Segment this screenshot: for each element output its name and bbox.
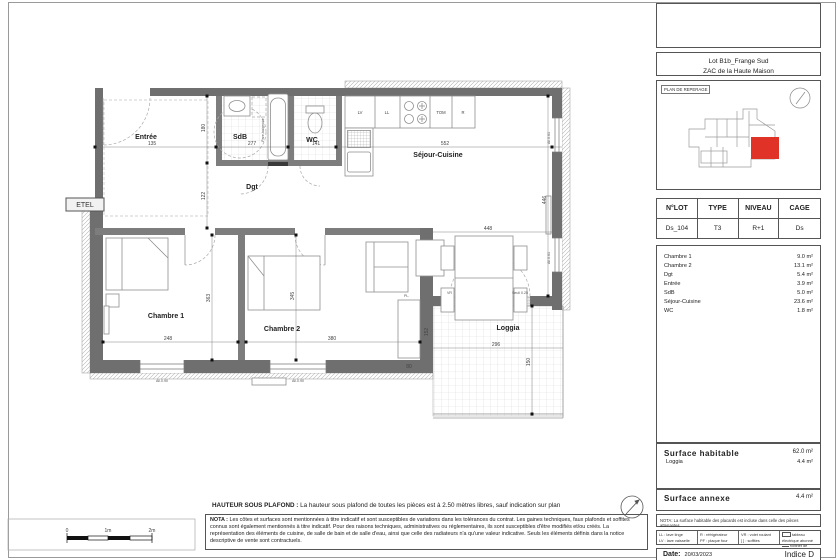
dining-table	[441, 236, 527, 320]
legend-col-3: VR : volet roulant [ ] : soffites	[739, 531, 780, 544]
label-r: R	[461, 110, 464, 115]
scale-1m: 1m	[105, 528, 112, 534]
label-lv: LV	[358, 110, 363, 115]
bed-chambre2	[248, 256, 320, 310]
label-pl: PL.	[404, 294, 409, 298]
area-value: 1.8 m²	[797, 307, 813, 316]
area-label: Séjour-Cuisine	[664, 298, 701, 307]
area-label: SdB	[664, 289, 675, 298]
label-tom: TOM	[436, 110, 446, 115]
area-value: 5.4 m²	[797, 271, 813, 280]
area-row: Chambre 19.0 m²	[657, 253, 820, 262]
dim-sejour-b: 448	[484, 226, 493, 232]
window-chambre1	[140, 360, 184, 373]
key-plan	[657, 81, 820, 189]
dim-sejour-h: 446	[542, 196, 548, 205]
dim-pl-h: 152	[424, 328, 430, 337]
window-chambre2	[270, 360, 326, 373]
label-sdb: SdB	[233, 134, 247, 141]
ceiling-height-text: La hauteur sous plafond de toutes les pi…	[298, 502, 560, 509]
dim-ch1-h: 363	[206, 294, 212, 303]
wardrobe-pl	[398, 300, 420, 358]
lot-value-niveau: R+1	[739, 219, 780, 238]
ch1-door-arc	[185, 235, 215, 265]
towel-radiator	[268, 162, 288, 166]
key-plan-box: PLAN DE REPERAGE	[656, 80, 821, 190]
label-pare-baignoire: Pare-baignoire	[261, 118, 265, 142]
scale-bar: 0 1m 2m	[8, 519, 195, 550]
lot-header-niveau: NIVEAU	[739, 199, 780, 219]
label-all-090-a: All.0.90	[156, 379, 168, 383]
dim-pl-w: 80	[406, 364, 412, 370]
dim-ch1-w: 248	[164, 336, 173, 342]
area-row: Séjour-Cuisine23.6 m²	[657, 298, 820, 307]
area-row: Entrée3.9 m²	[657, 280, 820, 289]
label-chambre2: Chambre 2	[264, 326, 300, 333]
ceiling-height-note: HAUTEUR SOUS PLAFOND : La hauteur sous p…	[212, 502, 642, 509]
area-value: 3.9 m²	[797, 280, 813, 289]
dim-loggia-w: 296	[492, 342, 501, 348]
drawing-sheet: Entrée SdB WC Dgt Séjour-Cuisine Chambre…	[0, 0, 840, 560]
project-line2: ZAC de la Haute Maison	[657, 67, 820, 77]
date-value: 20/03/2023	[685, 552, 785, 558]
lot-header-cage: CAGE	[779, 199, 820, 219]
nota-label: NOTA :	[210, 517, 228, 523]
area-label: WC	[664, 307, 673, 316]
project-line1: Lot B1b_Frange Sud	[657, 57, 820, 67]
legend-box: LL : lave linge LV : lave vaisselle R : …	[656, 530, 821, 545]
lot-header-type: TYPE	[698, 199, 739, 219]
window-sejour-2	[552, 238, 562, 272]
legend-lv: LV : lave vaisselle	[659, 538, 695, 544]
label-chambre1: Chambre 1	[148, 313, 184, 320]
label-etel: ETEL	[76, 202, 94, 209]
nota-text: Les côtes et surfaces sont mentionnées à…	[210, 517, 630, 544]
area-label: Chambre 2	[664, 262, 692, 271]
sofa	[366, 242, 408, 292]
indice-label: Indice D	[785, 550, 814, 559]
label-dgt: Dgt	[246, 184, 258, 191]
nightstand-ch1	[106, 294, 119, 307]
surface-loggia-label: Loggia	[666, 459, 683, 465]
dim-ch2-w: 380	[328, 336, 337, 342]
surface-annexe-value: 4.4 m²	[796, 494, 813, 503]
label-all-090-b: All.0.90	[292, 379, 304, 383]
label-sejour: Séjour-Cuisine	[413, 152, 463, 159]
area-value: 23.6 m²	[794, 298, 813, 307]
bathtub	[268, 94, 288, 160]
area-row: SdB5.0 m²	[657, 289, 820, 298]
radiator-ch1	[104, 306, 109, 334]
dim-loggia-h: 150	[526, 358, 532, 367]
area-label: Entrée	[664, 280, 680, 289]
surface-habitable-value: 62.0 m²	[793, 449, 813, 458]
surface-loggia-value: 4.4 m²	[797, 459, 813, 465]
wc-door-arc	[300, 166, 320, 186]
legend-col-2: R : réfrigérateur PF : plaque four	[698, 531, 739, 544]
lot-value-cage: Ds	[779, 219, 820, 238]
dim-dgt: 122	[201, 192, 207, 201]
surface-annexe-box: Surface annexe 4.4 m²	[656, 489, 821, 511]
kitchen-sink	[345, 128, 373, 176]
label-entree: Entrée	[135, 134, 157, 141]
dim-sdb-w: 277	[248, 141, 257, 147]
area-label: Dgt	[664, 271, 673, 280]
date-box: Date: 20/03/2023 Indice D	[656, 548, 821, 560]
label-all-061-b: All.0.61	[547, 252, 551, 264]
nota-box: NOTA : Les côtes et surfaces sont mentio…	[205, 514, 648, 550]
entree-soffit-dashed	[104, 100, 208, 216]
window-entrance-door-gap	[103, 88, 150, 96]
legend-pf: PF : plaque four	[700, 538, 736, 544]
label-ll: LL	[385, 110, 390, 115]
architect-box	[656, 3, 821, 48]
tap-icon	[782, 546, 789, 547]
surface-habitable-box: Surface habitable 62.0 m² Loggia 4.4 m²	[656, 443, 821, 489]
area-row: Chambre 213.1 m²	[657, 262, 820, 271]
key-plan-highlight	[751, 137, 779, 159]
dim-wc: 141	[312, 141, 321, 147]
legend-col-4: tableau électrique abonné robinet de pui…	[780, 531, 820, 544]
label-seuil: Seuil 0.25	[512, 291, 528, 295]
date-label: Date:	[663, 551, 681, 558]
label-loggia: Loggia	[497, 325, 520, 332]
lot-value-nlot: Ds_104	[657, 219, 698, 238]
area-value: 9.0 m²	[797, 253, 813, 262]
area-row: WC1.8 m²	[657, 307, 820, 316]
legend-col-1: LL : lave linge LV : lave vaisselle	[657, 531, 698, 544]
area-label: Chambre 1	[664, 253, 692, 262]
dim-sdb-h: 180	[201, 124, 207, 133]
nota-small-text: NOTA: La surface habitable des placards …	[657, 515, 820, 531]
areas-box: Chambre 19.0 m² Chambre 213.1 m² Dgt5.4 …	[656, 245, 821, 443]
nota-small-box: NOTA: La surface habitable des placards …	[656, 514, 821, 527]
label-all-061-a: All.0.61	[547, 132, 551, 144]
area-value: 13.1 m²	[794, 262, 813, 271]
lot-header-nlot: N°LOT	[657, 199, 698, 219]
lot-value-type: T3	[698, 219, 739, 238]
lot-table: N°LOT TYPE NIVEAU CAGE Ds_104 T3 R+1 Ds	[656, 198, 821, 239]
surface-habitable-label: Surface habitable	[664, 449, 739, 458]
dim-entree: 135	[148, 141, 157, 147]
label-vr: VR	[447, 291, 452, 295]
bathroom-sink	[224, 96, 250, 116]
shelf-ch2	[252, 378, 286, 385]
legend-soffites: [ ] : soffites	[741, 538, 777, 544]
area-value: 5.0 m²	[797, 289, 813, 298]
surface-annexe-label: Surface annexe	[664, 494, 730, 503]
floor-plan: Entrée SdB WC Dgt Séjour-Cuisine Chambre…	[0, 0, 660, 560]
bed-chambre1	[106, 238, 168, 290]
ceiling-height-label: HAUTEUR SOUS PLAFOND :	[212, 502, 298, 509]
area-row: Dgt5.4 m²	[657, 271, 820, 280]
dim-sejour-w: 552	[441, 141, 450, 147]
key-plan-north-icon	[790, 88, 810, 108]
project-box: Lot B1b_Frange Sud ZAC de la Haute Maiso…	[656, 52, 821, 76]
dim-ch2-h: 345	[290, 292, 296, 301]
coffee-table	[416, 240, 444, 276]
